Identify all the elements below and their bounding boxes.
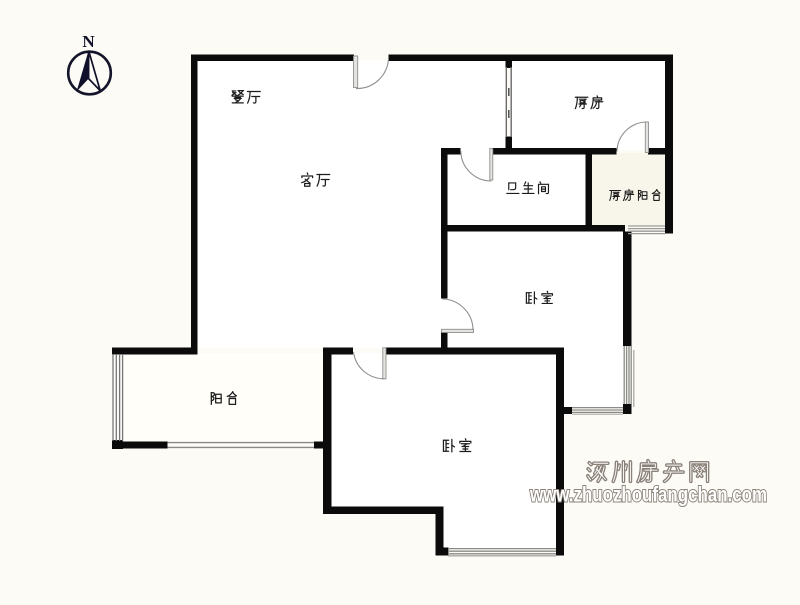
svg-text:www.zhuozhoufangchan.com: www.zhuozhoufangchan.com [529, 484, 767, 507]
svg-text:N: N [82, 32, 95, 51]
